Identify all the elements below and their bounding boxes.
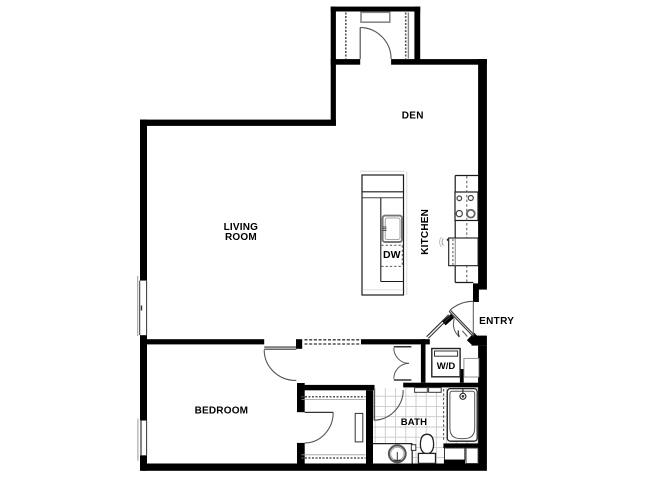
- svg-text:ROOM: ROOM: [225, 232, 257, 243]
- svg-text:ENTRY: ENTRY: [479, 316, 514, 327]
- svg-text:DW: DW: [383, 249, 401, 261]
- svg-text:W/D: W/D: [437, 361, 456, 372]
- svg-text:KITCHEN: KITCHEN: [420, 209, 431, 255]
- svg-text:BEDROOM: BEDROOM: [195, 406, 249, 417]
- svg-text:DEN: DEN: [402, 111, 424, 122]
- svg-text:BATH: BATH: [401, 417, 427, 428]
